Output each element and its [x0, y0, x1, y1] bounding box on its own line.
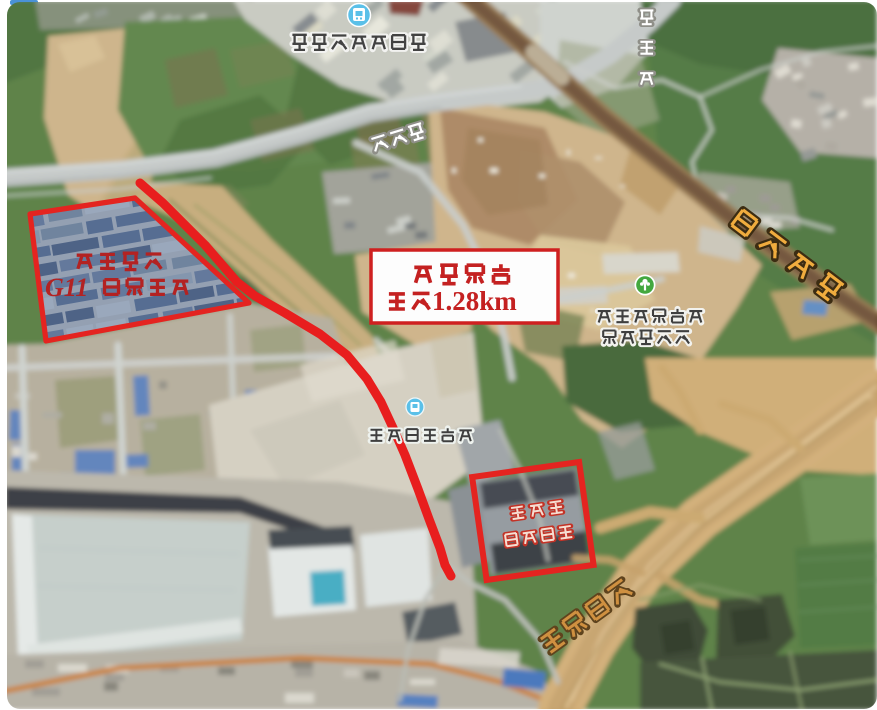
svg-text:1.28km: 1.28km [432, 286, 517, 316]
svg-text:G11: G11 [45, 273, 88, 302]
